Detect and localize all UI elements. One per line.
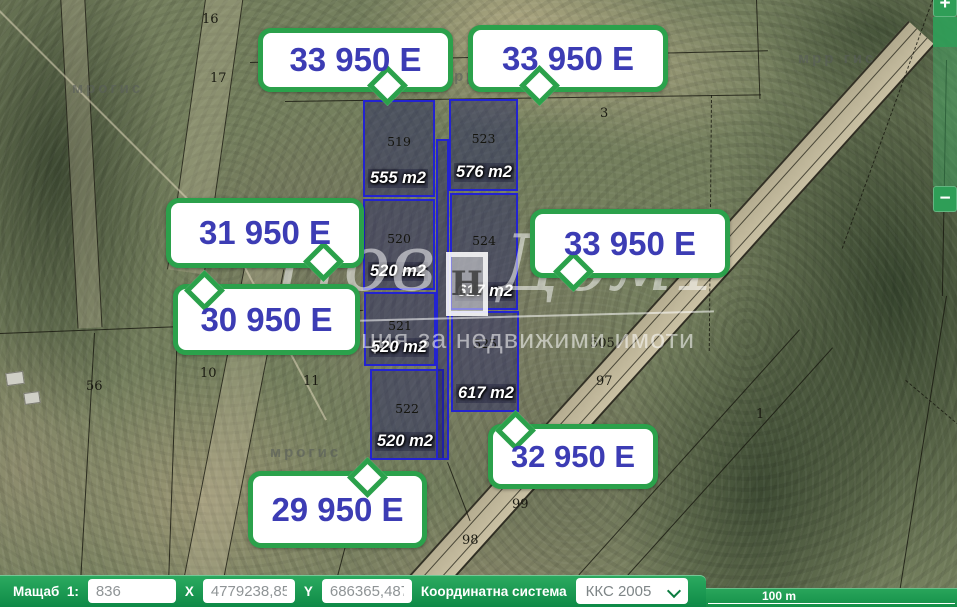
x-coordinate-input[interactable] (203, 579, 295, 603)
parcel-number: 519 (365, 134, 433, 149)
boundary-line (447, 462, 471, 521)
price-label: 32 950 E (511, 439, 635, 475)
gis-map-app: мрогис мрргис мрр гис мрогис 16 17 3 56 … (0, 0, 957, 607)
boundary-line (896, 296, 947, 607)
map-scale-bar: 100 m (706, 588, 957, 607)
parcel-area-label: 576 m2 (454, 163, 514, 182)
parcel-523[interactable]: 523 576 m2 (449, 99, 518, 191)
parcel-area-label: 520 m2 (368, 262, 428, 281)
zoom-slider[interactable] (933, 17, 957, 186)
parcel-number: 524 (452, 233, 516, 248)
price-bubble: 33 950 E (258, 28, 453, 92)
price-bubble: 33 950 E (530, 209, 730, 278)
parcel-525[interactable]: 525 617 m2 (451, 311, 519, 412)
zoom-slider-handle[interactable] (933, 17, 957, 47)
boundary-line (167, 327, 178, 607)
price-bubble: 29 950 E (248, 471, 427, 548)
y-coordinate-input[interactable] (322, 579, 412, 603)
parcel-corridor (436, 139, 449, 460)
building (5, 371, 25, 386)
map-tile-watermark: мрогис (72, 80, 143, 97)
building (23, 391, 41, 405)
plot-number: 98 (462, 533, 479, 548)
price-bubble: 32 950 E (488, 424, 658, 489)
parcel-521[interactable]: 521 520 m2 (364, 292, 436, 366)
parcel-area-label: 617 m2 (455, 282, 515, 301)
map-viewport[interactable]: мрогис мрргис мрр гис мрогис 16 17 3 56 … (0, 0, 957, 607)
plot-number: 97 (596, 374, 613, 389)
parcel-522[interactable]: 522 520 m2 (370, 369, 444, 460)
x-label: X (185, 584, 194, 599)
parcel-area-label: 520 m2 (375, 432, 435, 451)
map-tile-watermark: мрр гис (798, 50, 876, 67)
plot-number: 99 (512, 497, 529, 512)
plot-number: 3 (600, 106, 608, 121)
parcel-number: 522 (372, 401, 442, 416)
coordinate-system-label: Координатна система (421, 584, 567, 599)
parcel-number: 523 (451, 131, 516, 146)
parcel-519[interactable]: 519 555 m2 (363, 100, 435, 197)
plot-number: 11 (303, 374, 320, 389)
price-bubble: 33 950 E (468, 25, 668, 92)
parcel-524[interactable]: 524 617 m2 (450, 193, 518, 310)
plot-number: 10 (200, 366, 217, 381)
plot-number: 56 (86, 379, 103, 394)
coordinate-system-value: ККС 2005 (586, 583, 652, 600)
scale-label: Мащаб 1: (13, 584, 79, 599)
zoom-in-button[interactable]: + (933, 0, 957, 17)
plot-number: 16 (202, 12, 219, 27)
plot-number: 505 (590, 336, 615, 351)
scale-bar-label: 100 m (762, 589, 796, 603)
price-label: 33 950 E (289, 41, 421, 79)
boundary-line (79, 333, 95, 603)
parcel-520[interactable]: 520 520 m2 (363, 199, 435, 290)
zoom-out-button[interactable]: − (933, 186, 957, 212)
parcel-area-label: 617 m2 (456, 384, 516, 403)
coordinate-system-select[interactable]: ККС 2005 (576, 578, 688, 604)
zoom-control: + − (933, 0, 957, 212)
parcel-number: 525 (453, 336, 517, 351)
price-label: 33 950 E (502, 40, 634, 78)
plot-number: 1 (756, 407, 764, 422)
far-left-road (60, 0, 102, 329)
price-bubble: 31 950 E (166, 198, 364, 268)
scale-input[interactable] (88, 579, 176, 603)
price-label: 30 950 E (200, 301, 332, 339)
scale-bar-line (708, 603, 955, 604)
price-label: 31 950 E (199, 214, 331, 252)
y-label: Y (304, 584, 313, 599)
map-tile-watermark: мрогис (270, 444, 341, 461)
price-bubble: 30 950 E (173, 284, 360, 355)
boundary-line (285, 94, 761, 102)
parcel-area-label: 555 m2 (368, 169, 428, 188)
parcel-area-label: 520 m2 (369, 338, 429, 357)
parcel-number: 520 (365, 231, 433, 246)
chevron-down-icon (667, 584, 681, 598)
status-bar: Мащаб 1: X Y Координатна система ККС 200… (0, 575, 706, 607)
parcel-number: 521 (366, 318, 434, 333)
plot-number: 17 (210, 71, 227, 86)
price-label: 33 950 E (564, 225, 696, 263)
price-label: 29 950 E (271, 491, 403, 529)
